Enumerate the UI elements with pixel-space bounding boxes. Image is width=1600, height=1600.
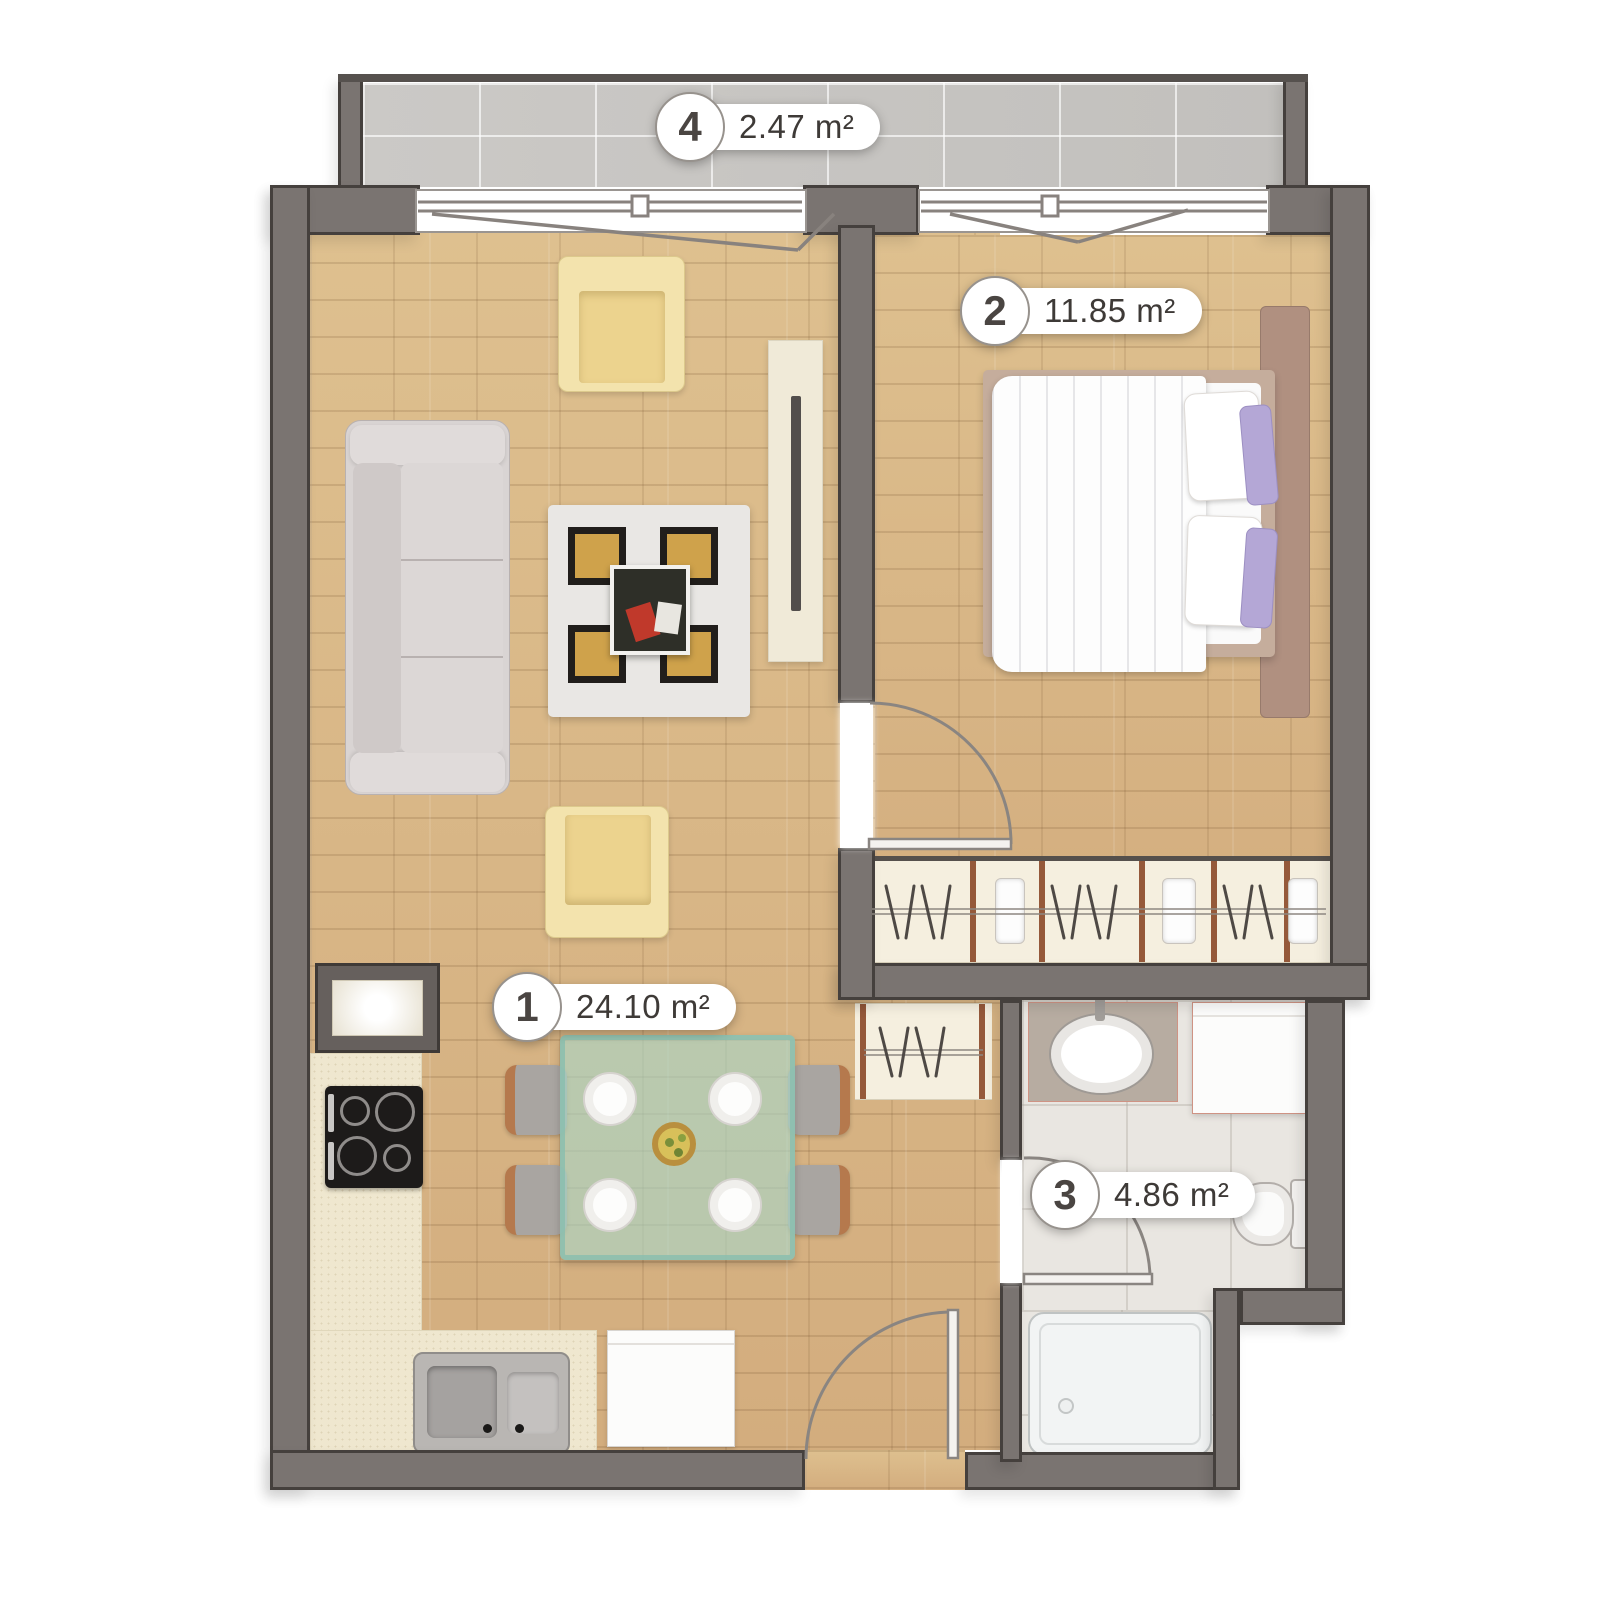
balcony-wall-left xyxy=(338,76,363,188)
folded-towel xyxy=(995,878,1025,944)
wall-living-bedroom-lower xyxy=(838,848,875,1000)
sofa-cushions xyxy=(401,463,503,753)
wall-bathroom-step xyxy=(1240,1288,1345,1325)
sofa-backrest xyxy=(353,463,401,753)
plate xyxy=(708,1178,762,1232)
bedroom-wardrobe xyxy=(867,856,1330,963)
armchair-bottom xyxy=(545,806,669,938)
hall-closet xyxy=(855,1003,992,1100)
room-label-3: 3 4.86 m² xyxy=(1030,1160,1255,1230)
dining-chair xyxy=(505,1065,567,1135)
kitchen-sink xyxy=(413,1352,570,1454)
sofa-armrest-top xyxy=(350,425,505,465)
washing-machine xyxy=(1192,1002,1306,1114)
room-label-4: 4 2.47 m² xyxy=(655,92,880,162)
sofa-armrest-bottom xyxy=(350,752,505,792)
magazine-white xyxy=(654,601,682,634)
refrigerator xyxy=(607,1330,735,1447)
folded-towel xyxy=(1162,878,1196,944)
wall-bathroom-right xyxy=(1305,1000,1345,1325)
bathroom-vanity xyxy=(1028,1002,1178,1102)
wall-bedroom-bottom xyxy=(838,963,1370,1000)
folded-towel xyxy=(1288,878,1318,944)
bathroom-door-opening xyxy=(1002,1160,1020,1283)
sink-basin-right xyxy=(507,1372,559,1434)
wall-bottom-left xyxy=(270,1450,805,1490)
bed-duvet xyxy=(992,376,1206,672)
serving-bowl xyxy=(652,1122,696,1166)
coffee-table xyxy=(610,565,690,655)
plate xyxy=(583,1072,637,1126)
sofa xyxy=(345,420,510,795)
dining-chair xyxy=(788,1065,850,1135)
armchair-top xyxy=(558,256,685,392)
wall-bathroom-left-lower xyxy=(1000,1283,1022,1462)
dining-chair xyxy=(505,1165,567,1235)
plate xyxy=(708,1072,762,1126)
window-bedroom xyxy=(918,189,1270,233)
wall-shower-right xyxy=(1213,1288,1240,1490)
room-label-1: 1 24.10 m² xyxy=(492,972,736,1042)
wall-right-bedroom xyxy=(1330,185,1370,1000)
plate xyxy=(583,1178,637,1232)
balcony-wall-top xyxy=(338,74,1308,82)
kitchen-vent-box xyxy=(315,963,440,1053)
room-number-badge: 1 xyxy=(492,972,562,1042)
entrance-opening xyxy=(805,1450,965,1490)
wall-bathroom-left-upper xyxy=(1000,1000,1022,1160)
room-label-2: 2 11.85 m² xyxy=(960,276,1202,346)
rug xyxy=(548,505,750,717)
floor-plan-canvas: 1 24.10 m² 2 11.85 m² 3 4.86 m² 4 2.47 m… xyxy=(0,0,1600,1600)
room-number-badge: 3 xyxy=(1030,1160,1100,1230)
cooktop xyxy=(325,1086,423,1188)
window-living-room xyxy=(415,189,807,233)
bedroom-door-opening xyxy=(840,703,873,848)
washbasin xyxy=(1049,1013,1154,1095)
faucet xyxy=(1095,997,1105,1021)
room-number-badge: 2 xyxy=(960,276,1030,346)
wall-left xyxy=(270,185,310,1490)
wall-living-bedroom-upper xyxy=(838,225,875,703)
balcony-wall-right xyxy=(1283,76,1308,188)
tv-console xyxy=(768,340,823,662)
tv-screen xyxy=(791,396,801,611)
dining-chair xyxy=(788,1165,850,1235)
room-number-badge: 4 xyxy=(655,92,725,162)
shower-tray xyxy=(1028,1312,1212,1456)
